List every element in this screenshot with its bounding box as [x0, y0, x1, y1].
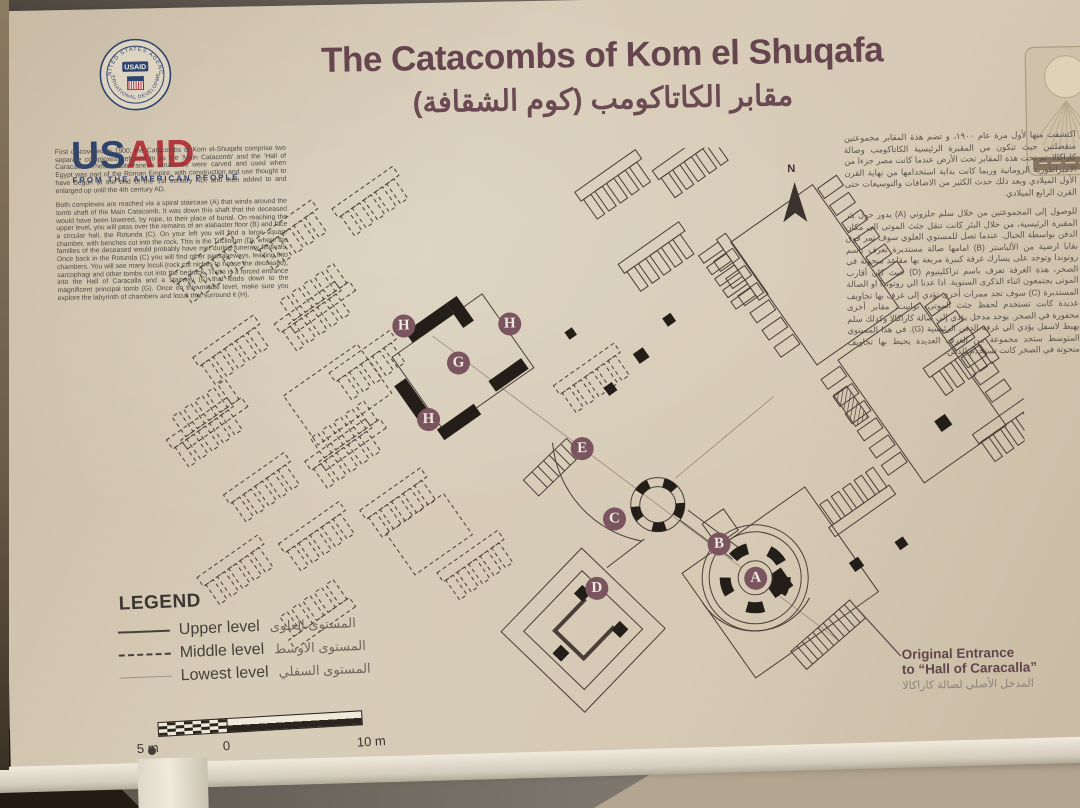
usaid-seal-icon: UNITED STATES AGENCY INTERNATIONAL DEVEL… [97, 36, 174, 113]
svg-text:USAID: USAID [124, 64, 146, 71]
scale-label-0: 0 [222, 738, 230, 753]
sign-frame-post [137, 757, 208, 808]
frame-bolt [148, 747, 156, 755]
upper-level-line-sample [118, 629, 170, 633]
upper-level-structures [547, 142, 1031, 682]
scale-bar-checker-segment [157, 718, 228, 737]
lowest-level-line-sample [120, 676, 172, 679]
entrance-staircase-shape [791, 600, 866, 669]
sign-board: UNITED STATES AGENCY INTERNATIONAL DEVEL… [0, 0, 1080, 779]
page-title-arabic: مقابر الكاتاكومب (كوم الشقافة) [298, 76, 909, 123]
photo-background: UNITED STATES AGENCY INTERNATIONAL DEVEL… [0, 0, 1080, 808]
legend-item-lowest: Lowest level المستوى السفلي [119, 660, 371, 687]
scale-bar-solid-segment [226, 710, 363, 733]
legend-item-middle: Middle level المستوى الاوسط [118, 637, 370, 664]
entrance-note: Original Entrance to “Hall of Caracalla”… [902, 643, 1080, 694]
entrance-note-line2: to “Hall of Caracalla” [902, 658, 1080, 677]
black-pillars [564, 307, 955, 577]
north-label: N [787, 163, 795, 175]
scale-label-10m: 10 m [356, 733, 386, 750]
triclinium-shape [501, 548, 665, 712]
entrance-note-arabic: المدخل الأصلي لصالة كاراكالا [902, 675, 1080, 694]
legend: LEGEND Upper level المستوى العلوى Middle… [116, 584, 371, 693]
entrance-pointer-line [856, 606, 901, 657]
usaid-logo: UNITED STATES AGENCY INTERNATIONAL DEVEL… [65, 30, 275, 34]
photo-edge-shadow [0, 0, 9, 770]
page-title: The Catacombs of Kom el Shuqafa [277, 29, 928, 81]
north-arrow-icon [783, 182, 808, 222]
middle-level-structures [161, 162, 639, 652]
legend-item-upper: Upper level المستوى العلوى [118, 614, 370, 641]
middle-level-line-sample [119, 652, 171, 656]
